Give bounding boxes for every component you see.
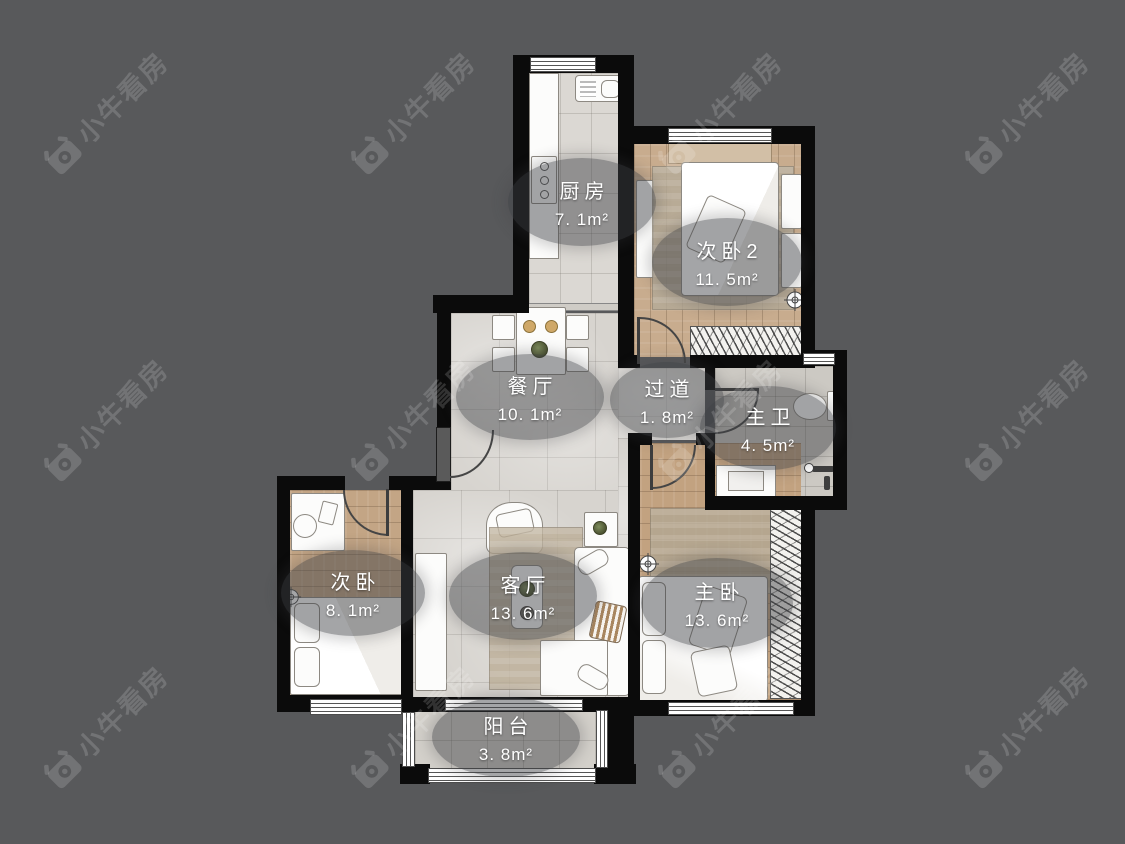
room-name: 厨房	[555, 175, 610, 204]
room-name: 次卧	[326, 566, 381, 595]
room-name: 餐厅	[503, 370, 558, 399]
room-label-dining: 餐厅 10. 1m²	[456, 354, 604, 440]
room-label-bedroom: 次卧 8. 1m²	[281, 550, 425, 636]
room-name: 客厅	[496, 569, 551, 598]
room-area: 1. 8m²	[640, 408, 694, 428]
room-area: 7. 1m²	[555, 210, 609, 230]
room-area: 11. 5m²	[695, 270, 758, 290]
room-label-master-bath: 主卫 4. 5m²	[700, 386, 836, 470]
room-name: 阳台	[479, 710, 534, 739]
room-label-living: 客厅 13. 6m²	[449, 552, 597, 640]
floor-plan: 厨房 7. 1m² 次卧2 11. 5m² 餐厅 10. 1m² 过道 1. 8…	[0, 0, 1125, 844]
room-name: 次卧2	[691, 235, 762, 264]
room-label-master-bedroom: 主卧 13. 6m²	[641, 558, 793, 648]
room-area: 3. 8m²	[479, 745, 533, 765]
room-label-kitchen: 厨房 7. 1m²	[508, 158, 656, 246]
room-area: 13. 6m²	[491, 604, 556, 624]
room-area: 10. 1m²	[498, 405, 563, 425]
room-label-balcony: 阳台 3. 8m²	[432, 697, 580, 777]
room-area: 13. 6m²	[685, 611, 750, 631]
labels-layer: 厨房 7. 1m² 次卧2 11. 5m² 餐厅 10. 1m² 过道 1. 8…	[0, 0, 1125, 844]
room-name: 过道	[640, 373, 695, 402]
room-name: 主卫	[741, 401, 796, 430]
room-area: 4. 5m²	[741, 436, 795, 456]
room-label-bedroom2: 次卧2 11. 5m²	[652, 218, 802, 306]
room-name: 主卧	[690, 576, 745, 605]
room-area: 8. 1m²	[326, 601, 380, 621]
